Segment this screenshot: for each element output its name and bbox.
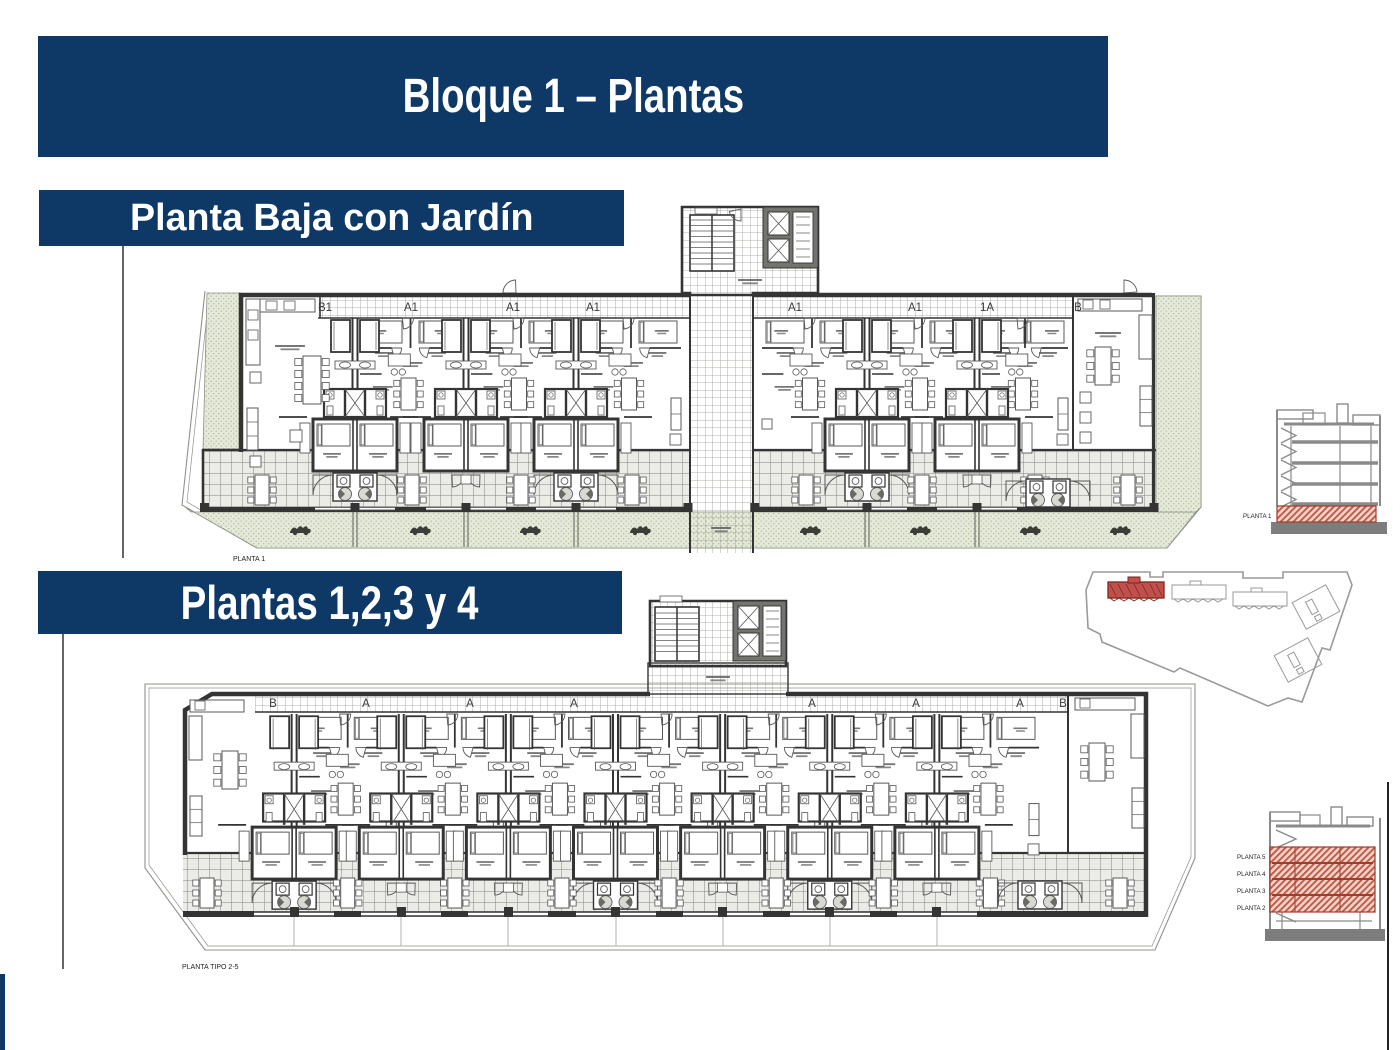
svg-text:PLANTA 3: PLANTA 3 [1237, 888, 1266, 895]
svg-text:A: A [1016, 698, 1024, 710]
svg-text:B: B [1059, 698, 1067, 710]
svg-text:PLANTA 1: PLANTA 1 [1243, 513, 1272, 520]
svg-text:A: A [362, 698, 370, 710]
svg-text:B: B [269, 698, 277, 710]
svg-text:1A: 1A [980, 302, 994, 314]
svg-text:A1: A1 [788, 302, 802, 314]
svg-text:B: B [1074, 302, 1082, 314]
svg-text:PLANTA TIPO 2-5: PLANTA TIPO 2-5 [182, 964, 239, 971]
svg-text:A1: A1 [404, 302, 418, 314]
svg-text:A: A [912, 698, 920, 710]
svg-text:A1: A1 [506, 302, 520, 314]
svg-text:A: A [570, 698, 578, 710]
svg-text:A1: A1 [586, 302, 600, 314]
svg-text:PLANTA 2: PLANTA 2 [1237, 905, 1266, 912]
svg-text:A: A [808, 698, 816, 710]
svg-text:PLANTA 4: PLANTA 4 [1237, 871, 1266, 878]
svg-text:PLANTA 1: PLANTA 1 [233, 556, 265, 563]
svg-text:B1: B1 [318, 302, 332, 314]
svg-text:PLANTA 5: PLANTA 5 [1237, 854, 1266, 861]
svg-text:A: A [466, 698, 474, 710]
svg-text:A1: A1 [908, 302, 922, 314]
